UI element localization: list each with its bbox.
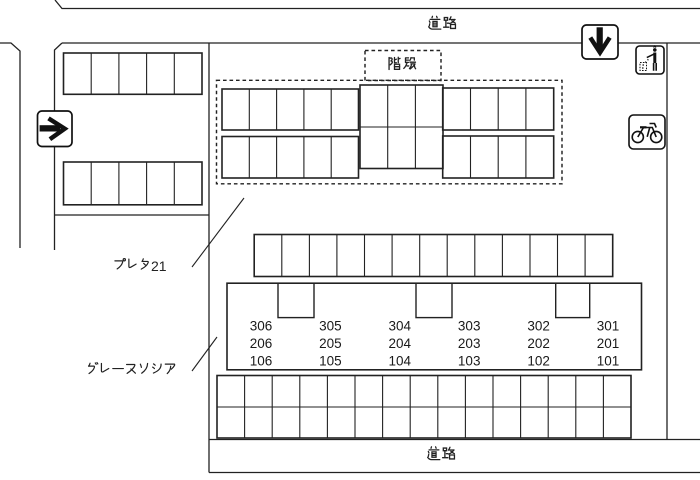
svg-text:106: 106 — [250, 353, 273, 368]
svg-text:201: 201 — [597, 336, 620, 351]
svg-text:101: 101 — [597, 353, 620, 368]
svg-text:203: 203 — [458, 336, 481, 351]
svg-text:306: 306 — [250, 319, 273, 334]
svg-text:202: 202 — [527, 336, 550, 351]
svg-text:105: 105 — [319, 353, 342, 368]
svg-text:302: 302 — [527, 319, 550, 334]
svg-text:204: 204 — [389, 336, 412, 351]
svg-text:304: 304 — [389, 319, 412, 334]
svg-text:205: 205 — [319, 336, 342, 351]
svg-text:305: 305 — [319, 319, 342, 334]
svg-text:102: 102 — [527, 353, 550, 368]
svg-text:104: 104 — [389, 353, 412, 368]
svg-text:206: 206 — [250, 336, 273, 351]
svg-text:21: 21 — [151, 258, 167, 274]
svg-text:103: 103 — [458, 353, 481, 368]
svg-text:303: 303 — [458, 319, 481, 334]
svg-text:301: 301 — [597, 319, 620, 334]
